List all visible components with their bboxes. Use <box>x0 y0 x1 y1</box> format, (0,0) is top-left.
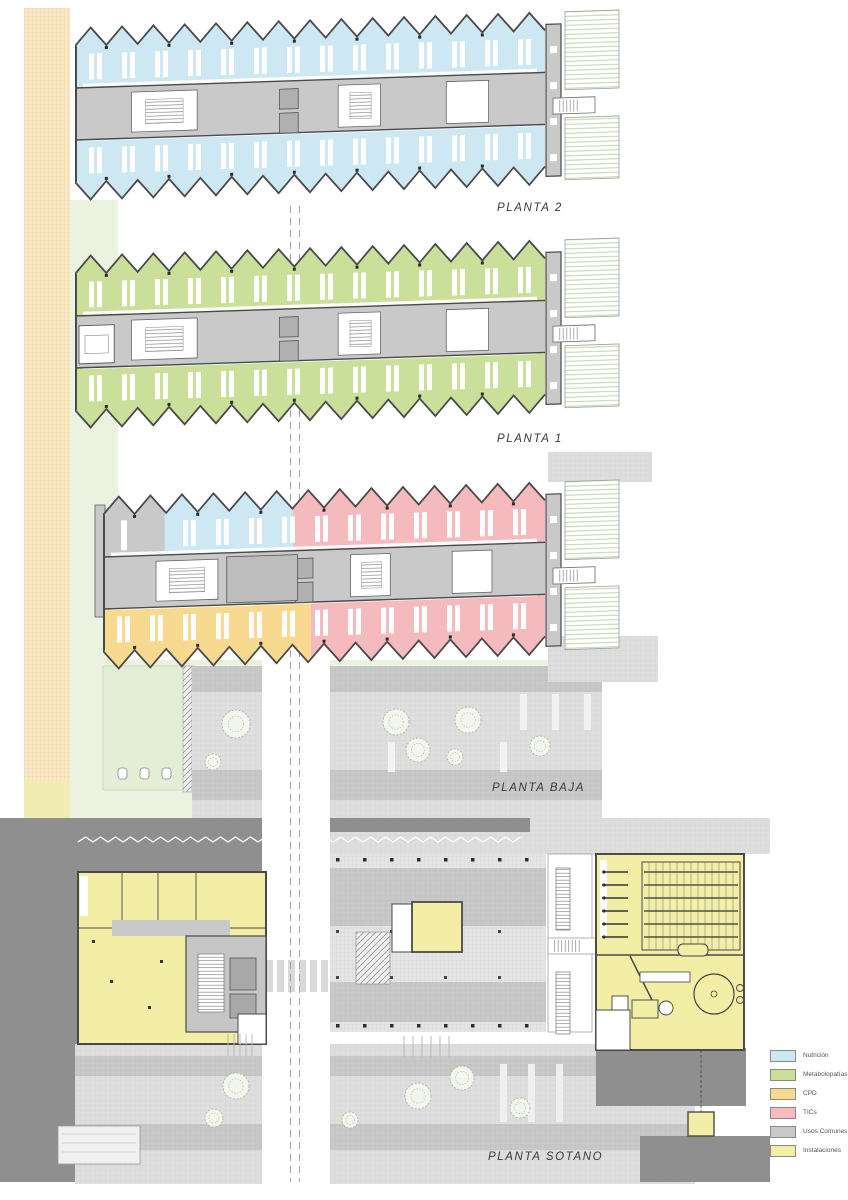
legend-swatch-instalaciones <box>770 1145 796 1157</box>
legend-label: Usos Comunes <box>803 1128 847 1135</box>
legend-swatch-cpd <box>770 1088 796 1100</box>
elevator <box>279 317 298 338</box>
site-strip-yellow <box>24 780 70 818</box>
legend-label: CPD <box>803 1090 817 1097</box>
floor-label-planta-sotano: PLANTA SOTANO <box>488 1151 603 1163</box>
bike-rack <box>118 768 127 779</box>
sotano-center-room <box>412 902 462 952</box>
floor-plan-planta-baja <box>103 478 621 700</box>
elevator <box>295 558 313 579</box>
crosswalk-stripe <box>321 960 328 992</box>
floor-label-planta-baja: PLANTA BAJA <box>492 782 585 794</box>
sotano-parking <box>330 854 546 1032</box>
legend-item-metabolopatias: Metabolopatías <box>770 1068 848 1081</box>
legend-item-tics: TICs <box>770 1106 848 1119</box>
legend-item-nutricion: Nutrición <box>770 1049 848 1062</box>
building <box>75 10 561 202</box>
legend-item-instalaciones: Instalaciones <box>770 1144 848 1157</box>
floor-label-planta-2: PLANTA 2 <box>497 202 563 214</box>
building <box>75 238 561 430</box>
floor-plan-planta-2 <box>75 8 621 231</box>
floor-plan-svg <box>103 478 621 700</box>
floor-plan-planta-1 <box>75 236 621 459</box>
satellite-equipment-box <box>688 1112 714 1136</box>
legend-item-cpd: CPD <box>770 1087 848 1100</box>
bike-rack <box>140 768 149 779</box>
drawing-sheet: PLANTA 2 PLANTA 1 PLANTA BAJA PLANTA SOT… <box>0 0 848 1200</box>
legend-swatch-nutricion <box>770 1050 796 1062</box>
floor-plan-svg <box>75 236 621 459</box>
floor-label-planta-1: PLANTA 1 <box>497 433 563 445</box>
legend-item-usos_comunes: Usos Comunes <box>770 1125 848 1138</box>
stair <box>198 954 224 1012</box>
legend-label: Instalaciones <box>803 1147 841 1154</box>
sotano-left-block <box>78 872 266 1044</box>
hall <box>227 555 298 603</box>
crosswalk-stripe <box>277 960 284 992</box>
ramp <box>356 932 390 984</box>
floor-plan-svg <box>75 8 621 231</box>
crosswalk-stripe <box>299 960 306 992</box>
bike-rack <box>162 768 171 779</box>
small-structure <box>58 1126 140 1164</box>
annex-louver-deck <box>553 238 619 408</box>
elevator <box>230 958 256 990</box>
annex-louver-deck <box>553 480 619 650</box>
annex-louver-deck <box>553 10 619 180</box>
tank <box>694 974 734 1014</box>
crosswalk-stripe <box>310 960 317 992</box>
legend-label: Metabolopatías <box>803 1071 847 1078</box>
legend-swatch-tics <box>770 1107 796 1119</box>
building <box>103 480 561 671</box>
legend: NutriciónMetabolopatíasCPDTICsUsos Comun… <box>770 1049 848 1163</box>
legend-swatch-metabolopatias <box>770 1069 796 1081</box>
crosswalk-stripe <box>288 960 295 992</box>
legend-label: Nutrición <box>803 1052 829 1059</box>
site-strip-orange <box>24 8 70 780</box>
legend-swatch-usos_comunes <box>770 1126 796 1138</box>
elevator <box>279 89 298 110</box>
meeting-room <box>79 325 114 364</box>
legend-label: TICs <box>803 1109 817 1116</box>
crosswalk-stripe <box>266 960 273 992</box>
